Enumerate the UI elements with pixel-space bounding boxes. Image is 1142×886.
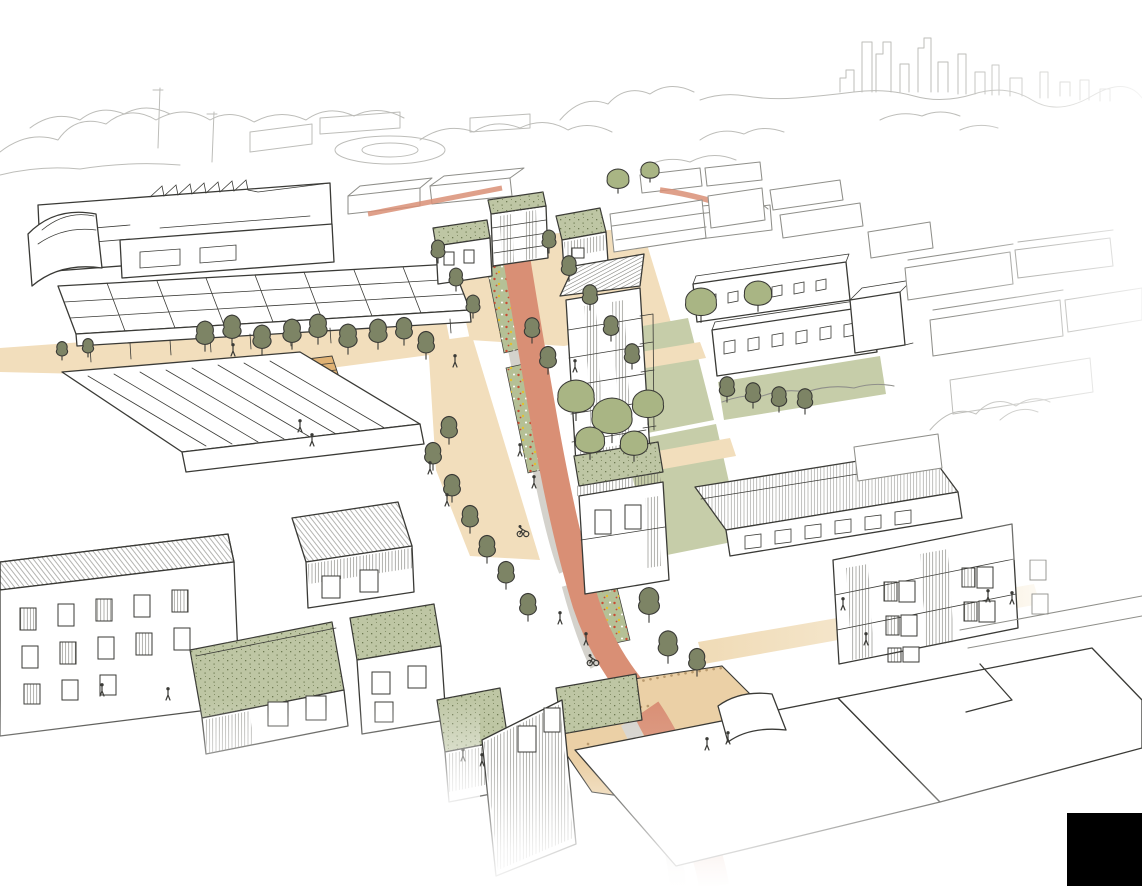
street-tree: [797, 389, 812, 415]
street-tree: [520, 593, 537, 621]
street-tree: [639, 588, 660, 623]
bottom-left-fade: [0, 700, 480, 886]
street-tree: [607, 169, 629, 194]
street-tree: [658, 631, 677, 664]
industrial-sheds: [28, 180, 334, 286]
pedestrian-figure: [518, 443, 522, 456]
hatched-roof-building: [292, 502, 414, 608]
street-tree: [498, 561, 515, 589]
tall-green-roof-building: [488, 192, 548, 266]
distant-structures: [153, 88, 998, 164]
tree-line: [0, 86, 784, 175]
green-terrace-building: [574, 442, 669, 594]
masterplan-sketch: [0, 0, 1142, 886]
pedestrian-figure: [558, 611, 562, 624]
masterplan-sketch-canvas: [0, 0, 1142, 886]
street-tree: [479, 535, 496, 563]
redaction-rectangle: [1067, 813, 1142, 886]
pedestrian-figure: [428, 461, 432, 474]
gable-house: [850, 280, 913, 353]
warehouse-ribbed: [62, 352, 424, 472]
right-fade: [950, 60, 1142, 560]
